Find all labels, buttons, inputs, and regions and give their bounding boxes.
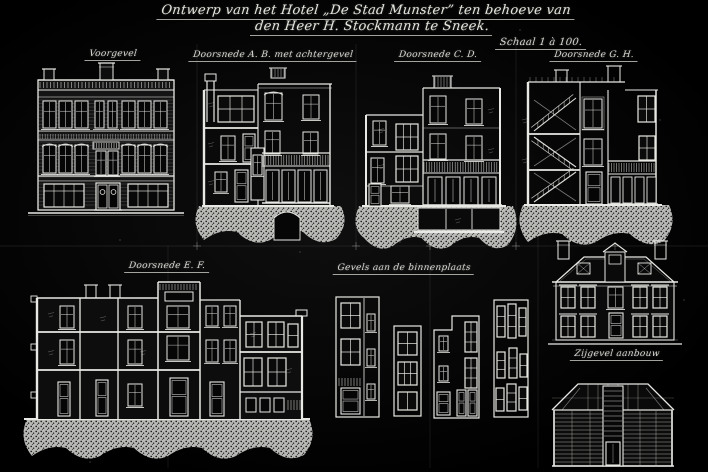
sheet-title-line1: Ontwerp van het Hotel „De Stad Munster” … [156,3,575,20]
label-aanbouw: Zijgevel aanbouw [570,349,664,361]
scale-note: Schaal 1 à 100. [495,37,587,50]
label-doorsnede-gh: Doorsnede G. H. [549,50,638,62]
label-doorsnede-cd: Doorsnede C. D. [394,50,482,62]
sheet-title-line2: den Heer H. Stockmann te Sneek. [250,19,494,36]
blueprint-sheet: Ontwerp van het Hotel „De Stad Munster” … [0,0,708,472]
drawing-voorgevel [28,63,184,216]
drawing-aanbouw-kapplan [552,384,674,466]
drawing-binnenplaats-gevels [336,297,528,418]
label-doorsnede-ef: Doorsnede E. F. [124,261,210,273]
drawing-doorsnede-ef [23,282,312,459]
drawing-aanbouw-gevel [548,241,682,344]
drawing-doorsnede-cd [355,76,516,249]
drawing-doorsnede-gh [519,66,672,245]
label-binnenplaats: Gevels aan de binnenplaats [333,263,476,275]
drawing-doorsnede-ab-achtergevel [195,68,344,243]
drawing-canvas [0,0,708,472]
label-doorsnede-ab: Doorsnede A. B. met achtergevel [188,50,357,62]
label-voorgevel: Voorgevel [84,49,141,61]
